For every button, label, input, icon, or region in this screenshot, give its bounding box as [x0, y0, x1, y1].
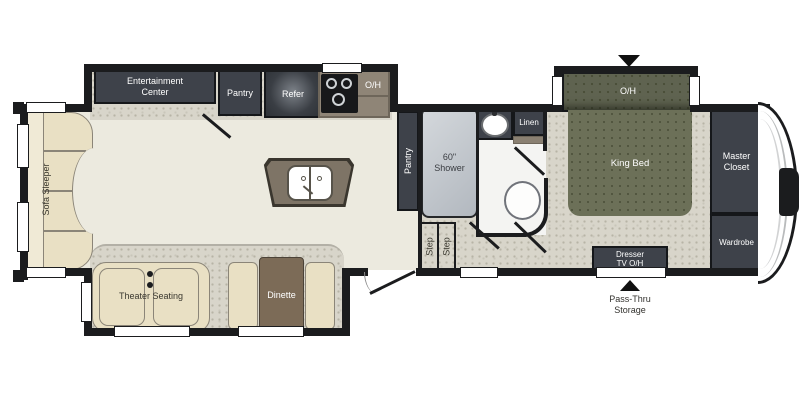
rv-floorplan: Sofa Sleeper Entertainment Center Pantry… [0, 0, 800, 400]
window [26, 102, 66, 113]
master-closet: Master Closet [710, 110, 763, 214]
hitch-pin [779, 168, 799, 216]
pantry-front: Pantry [218, 70, 262, 116]
entertainment-center: Entertainment Center [94, 70, 216, 104]
pass-thru-arrow-icon [620, 280, 640, 291]
bed-overhead: O/H [562, 70, 694, 112]
window [26, 267, 66, 278]
window [322, 63, 362, 73]
linen-shelf [513, 136, 545, 144]
dinette-bench [228, 262, 258, 330]
window [238, 326, 304, 337]
window [460, 267, 498, 278]
step-label: Step [441, 227, 452, 267]
king-bed: King Bed [568, 110, 692, 216]
living-slide-wall [342, 268, 350, 336]
slide-indicator-icon [618, 55, 640, 67]
cupholder-icon [147, 271, 153, 277]
island-sink-icon [287, 165, 333, 201]
window [114, 326, 190, 337]
window [596, 267, 666, 278]
window [689, 76, 700, 106]
cupholder-icon [147, 282, 153, 288]
step-label: Step [424, 227, 435, 267]
window [17, 124, 29, 168]
sofa-sleeper-label: Sofa Sleeper [39, 132, 52, 247]
theater-seating-label: Theater Seating [92, 291, 210, 301]
dinette-bench [305, 262, 335, 330]
shower: 60" Shower [421, 107, 478, 218]
window [81, 282, 92, 322]
bath-sink-icon [481, 113, 509, 137]
cooktop-icon [321, 74, 358, 113]
bed-slide-wall [554, 66, 696, 74]
rear-corner [13, 102, 24, 114]
linen-closet: Linen [513, 109, 545, 136]
kitchen-overhead-label: O/H [356, 80, 390, 90]
window [552, 76, 563, 106]
wall [390, 104, 562, 112]
interior-wall [418, 108, 422, 272]
sofa-front-curve [72, 148, 116, 234]
pantry-hall-label: Pantry [402, 131, 414, 191]
refrigerator: Refer [264, 70, 322, 118]
dinette-label: Dinette [259, 290, 304, 300]
wardrobe: Wardrobe [710, 214, 763, 271]
window [17, 202, 29, 252]
pass-thru-storage-label: Pass-Thru Storage [592, 294, 668, 316]
